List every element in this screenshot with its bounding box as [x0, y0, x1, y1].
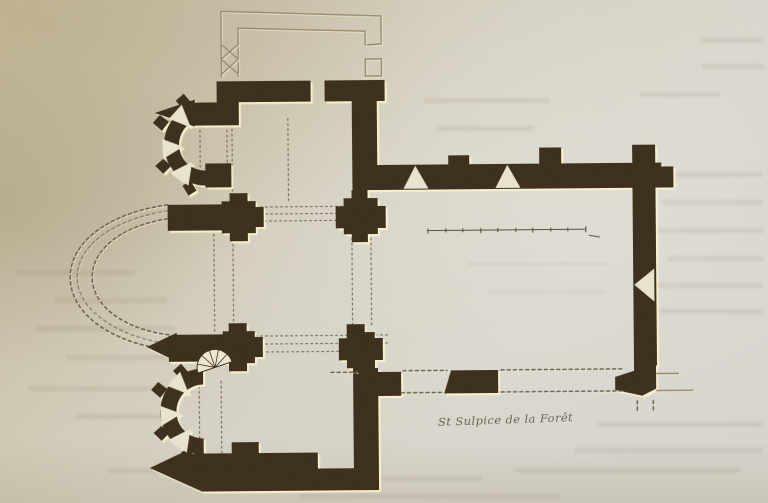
- photographed-book-page: St Sulpice de la Forêt: [0, 0, 768, 503]
- photo-grain: [0, 0, 768, 503]
- floor-plan-figure: [0, 0, 768, 503]
